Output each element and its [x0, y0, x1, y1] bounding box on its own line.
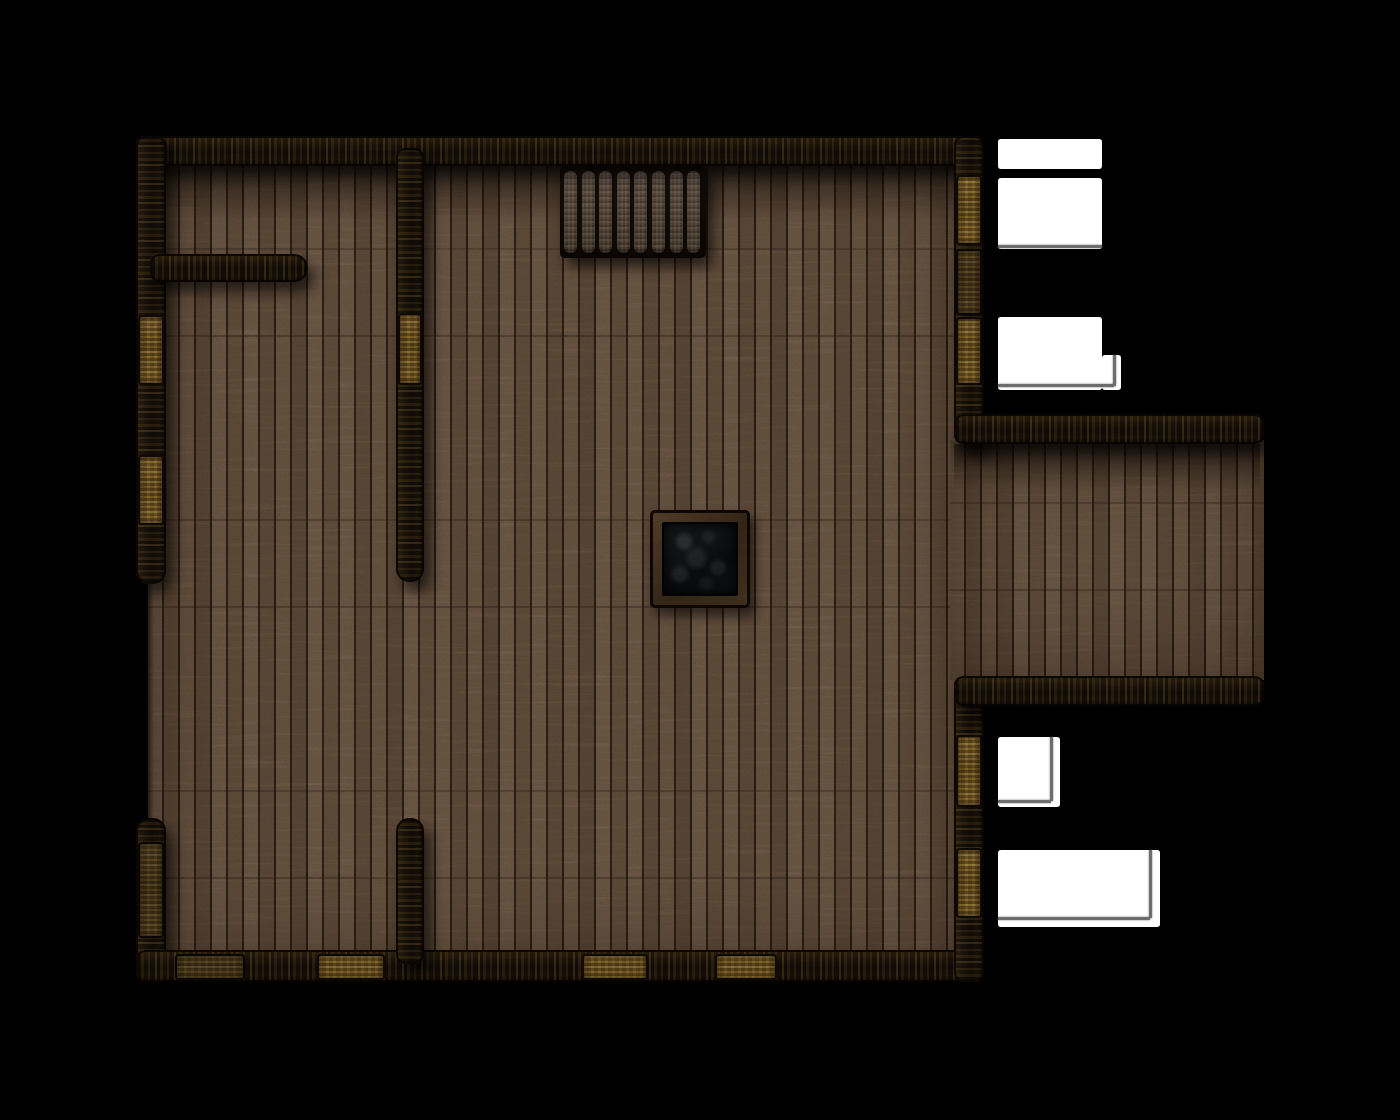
battle-map-canvas [0, 0, 1400, 1120]
wall-bottom [136, 950, 984, 982]
stair-tread [652, 171, 665, 253]
cast-shadow-line [1050, 737, 1053, 801]
door-partition [398, 313, 422, 385]
cast-shadow-line [998, 245, 1102, 248]
door-bottom-4 [715, 954, 777, 980]
door-right-5 [956, 848, 982, 918]
annex-floor [950, 440, 1264, 680]
staircase [560, 166, 706, 258]
stair-tread [634, 171, 647, 253]
stair-tread [617, 171, 630, 253]
stair-tread [564, 171, 577, 253]
door-left-3 [138, 842, 164, 938]
door-right-3 [956, 317, 982, 385]
stair-tread [670, 171, 683, 253]
door-right-1 [956, 175, 982, 245]
light-area-2 [998, 178, 1102, 249]
door-bottom-1 [175, 954, 245, 980]
wall-right-lower [954, 676, 984, 982]
door-right-2 [956, 249, 982, 315]
cast-shadow-line [998, 917, 1150, 920]
light-area-3 [998, 317, 1102, 390]
pit-opening [662, 522, 738, 596]
pit-hatch-frame [650, 510, 750, 608]
stair-tread [599, 171, 612, 253]
door-bottom-2 [317, 954, 385, 980]
cast-shadow-line [998, 384, 1114, 387]
partition-wall-horizontal [150, 254, 308, 282]
cast-shadow-line [1113, 355, 1116, 386]
door-bottom-3 [582, 954, 648, 980]
annex-wall-top [954, 414, 1264, 444]
stair-tread [687, 171, 700, 253]
light-area-5 [998, 850, 1160, 927]
light-area-1 [998, 139, 1102, 169]
stair-tread [582, 171, 595, 253]
door-left-2 [138, 455, 164, 525]
door-left-1 [138, 315, 164, 385]
cast-shadow-line [1149, 850, 1152, 918]
door-right-4 [956, 735, 982, 807]
annex-wall-bottom [954, 676, 1264, 706]
partition-wall-vertical-lower [396, 818, 424, 964]
wall-top [136, 136, 984, 166]
cast-shadow-line [998, 800, 1051, 803]
